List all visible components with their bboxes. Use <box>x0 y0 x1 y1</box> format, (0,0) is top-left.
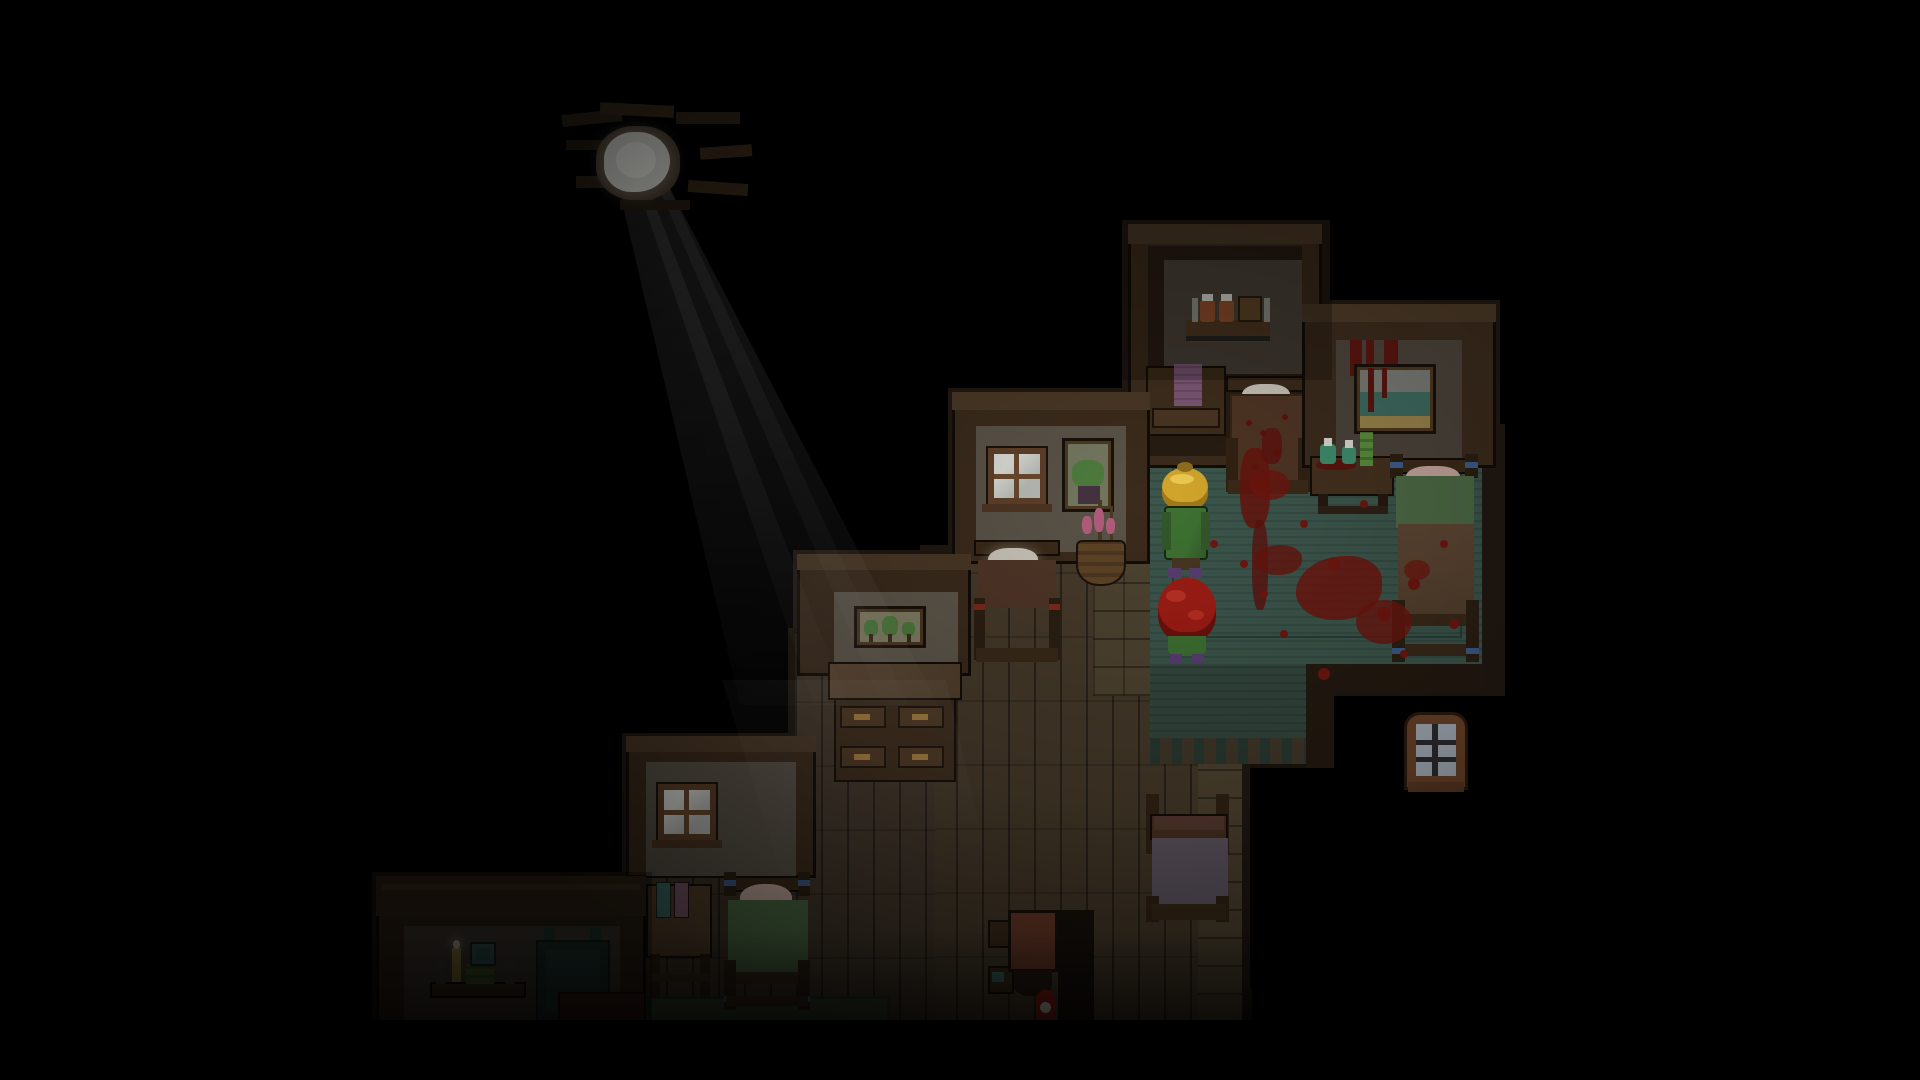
darkness-vignette <box>0 0 1920 1080</box>
letterbox-bottom <box>0 1020 1920 1080</box>
darkness-bottom-fade <box>0 930 1920 1022</box>
game-viewport[interactable] <box>0 0 1920 1080</box>
